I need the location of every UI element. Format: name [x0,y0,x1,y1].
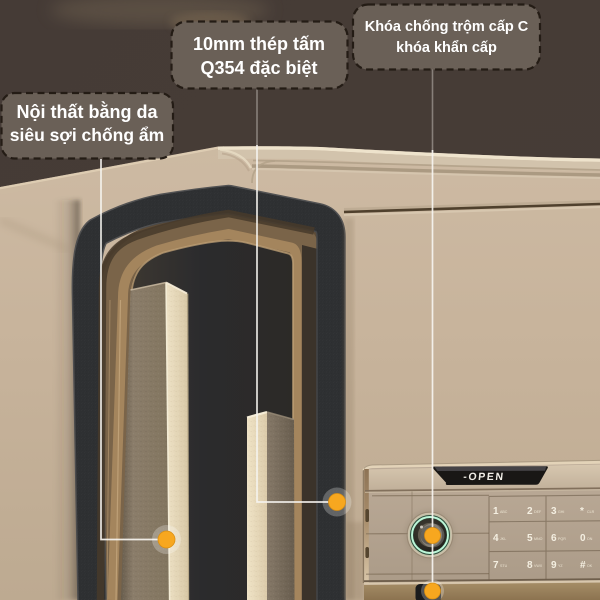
svg-text:CLR: CLR [587,510,595,514]
svg-text:5: 5 [527,533,533,544]
svg-text:0: 0 [580,533,586,544]
svg-text:Nội thất bằng da: Nội thất bằng da [17,101,159,122]
svg-text:10mm thép tấm: 10mm thép tấm [193,34,325,54]
svg-text:DEF: DEF [534,510,542,514]
svg-text:YZ: YZ [558,564,563,568]
svg-text:*: * [580,506,584,517]
svg-text:9: 9 [551,560,557,571]
svg-text:VWX: VWX [534,564,543,568]
svg-text:8: 8 [527,560,533,571]
svg-text:ABC: ABC [500,510,508,514]
svg-text:siêu sợi chống ẩm: siêu sợi chống ẩm [10,125,164,145]
svg-text:MNO: MNO [534,537,543,541]
svg-text:6: 6 [551,533,557,544]
svg-text:-OPEN: -OPEN [463,471,505,483]
svg-text:#: # [580,560,586,571]
svg-text:Q354 đặc biệt: Q354 đặc biệt [200,58,317,78]
svg-text:2: 2 [527,506,533,517]
svg-text:GHI: GHI [558,510,564,514]
svg-text:7: 7 [493,560,499,571]
svg-text:ON: ON [587,537,593,541]
svg-text:OK: OK [587,564,593,568]
svg-text:1: 1 [493,506,499,517]
svg-text:Khóa chống trộm cấp C: Khóa chống trộm cấp C [365,19,529,35]
svg-text:khóa khẩn cấp: khóa khẩn cấp [396,40,497,56]
svg-text:3: 3 [551,506,557,517]
svg-text:PQR: PQR [558,537,566,541]
svg-text:STU: STU [500,564,508,568]
svg-text:JKL: JKL [500,537,506,541]
svg-text:4: 4 [493,533,499,544]
